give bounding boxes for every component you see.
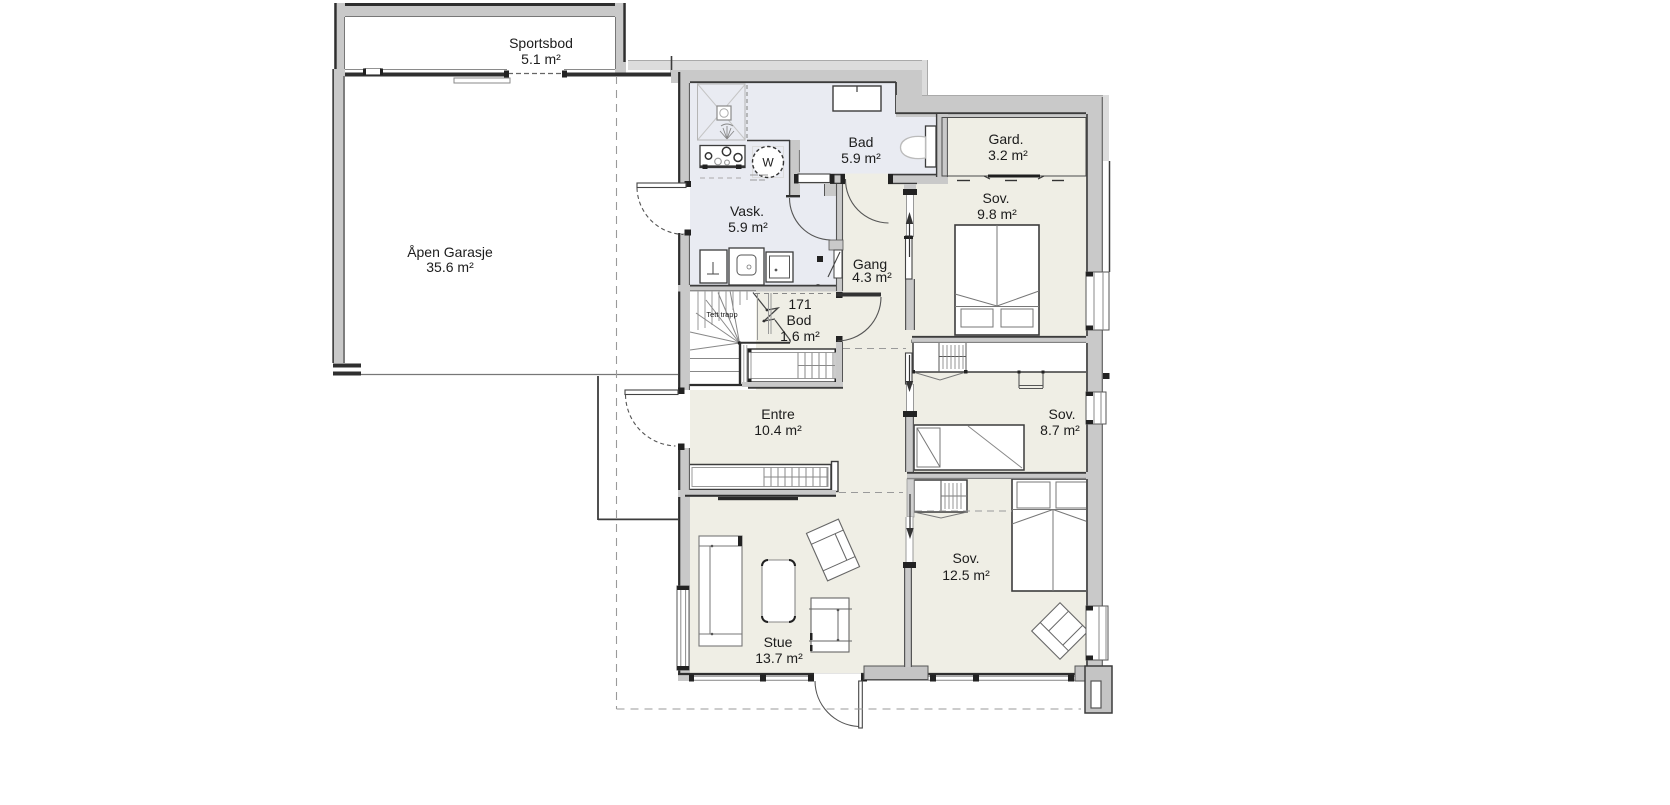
svg-text:9.8 m²: 9.8 m² (977, 206, 1017, 222)
svg-text:Gard.: Gard. (988, 131, 1023, 147)
svg-text:Sov.: Sov. (983, 190, 1010, 206)
svg-text:Sov.: Sov. (1049, 406, 1076, 422)
svg-text:3.2 m²: 3.2 m² (988, 147, 1028, 163)
svg-text:Bod: Bod (787, 312, 812, 328)
svg-text:Sportsbod: Sportsbod (509, 35, 573, 51)
svg-text:Stue: Stue (764, 634, 793, 650)
svg-text:10.4 m²: 10.4 m² (754, 422, 802, 438)
svg-text:5.1 m²: 5.1 m² (521, 51, 561, 67)
svg-text:13.7 m²: 13.7 m² (755, 650, 803, 666)
svg-text:W: W (762, 156, 774, 170)
svg-text:4.3 m²: 4.3 m² (852, 269, 892, 285)
svg-text:5.9 m²: 5.9 m² (841, 150, 881, 166)
svg-text:171: 171 (788, 296, 812, 312)
svg-text:Bad: Bad (849, 134, 874, 150)
svg-text:Tett trapp: Tett trapp (706, 310, 737, 319)
svg-text:Åpen Garasje: Åpen Garasje (407, 244, 493, 260)
svg-text:12.5 m²: 12.5 m² (942, 567, 990, 583)
svg-text:Vask.: Vask. (730, 203, 764, 219)
svg-text:5.9 m²: 5.9 m² (728, 219, 768, 235)
svg-text:Entre: Entre (761, 406, 795, 422)
svg-text:Sov.: Sov. (953, 550, 980, 566)
svg-text:1,6 m²: 1,6 m² (780, 328, 820, 344)
svg-text:35.6 m²: 35.6 m² (426, 259, 474, 275)
svg-text:8.7 m²: 8.7 m² (1040, 422, 1080, 438)
